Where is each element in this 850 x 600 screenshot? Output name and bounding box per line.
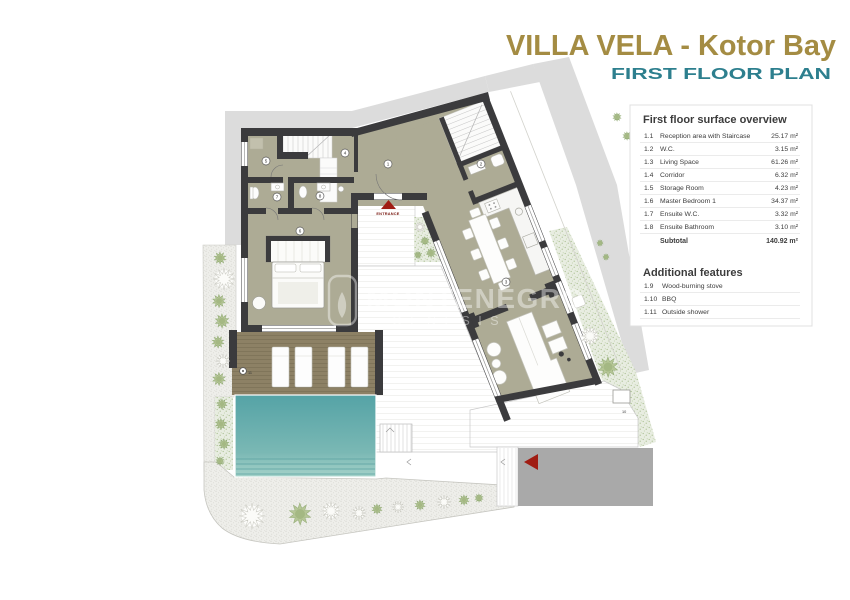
svg-text:FIRST FLOOR PLAN: FIRST FLOOR PLAN — [611, 66, 831, 83]
svg-text:First floor surface overview: First floor surface overview — [643, 114, 787, 126]
svg-text:34.37 m²: 34.37 m² — [771, 198, 799, 205]
svg-text:3.32 m²: 3.32 m² — [775, 211, 799, 218]
svg-text:7: 7 — [276, 195, 279, 200]
svg-text:1: 1 — [387, 162, 390, 167]
svg-text:1.4: 1.4 — [644, 172, 654, 179]
svg-text:Storage Room: Storage Room — [660, 185, 704, 192]
svg-text:1.2: 1.2 — [644, 146, 654, 153]
svg-text:Additional features: Additional features — [643, 267, 743, 279]
svg-text:11: 11 — [248, 371, 252, 375]
svg-text:Ensuite W.C.: Ensuite W.C. — [660, 211, 699, 218]
svg-text:8: 8 — [319, 194, 322, 199]
svg-text:10: 10 — [622, 410, 626, 414]
svg-text:1.11: 1.11 — [644, 309, 657, 316]
svg-text:Wood-burning stove: Wood-burning stove — [662, 283, 723, 290]
svg-text:4: 4 — [344, 151, 347, 156]
svg-text:Outside shower: Outside shower — [662, 309, 710, 316]
svg-text:140.92 m²: 140.92 m² — [766, 238, 799, 245]
svg-text:6: 6 — [299, 229, 302, 234]
svg-text:3.15 m²: 3.15 m² — [775, 146, 799, 153]
svg-text:1.8: 1.8 — [644, 224, 654, 231]
svg-text:1.9: 1.9 — [644, 283, 654, 290]
svg-text:4.23 m²: 4.23 m² — [775, 185, 799, 192]
svg-text:Corridor: Corridor — [660, 172, 685, 179]
svg-text:Reception area with Staircase: Reception area with Staircase — [660, 133, 751, 140]
svg-text:BBQ: BBQ — [662, 296, 676, 303]
svg-text:Living Space: Living Space — [660, 159, 699, 166]
svg-text:1.10: 1.10 — [644, 296, 657, 303]
svg-text:Subtotal: Subtotal — [660, 238, 688, 245]
svg-text:61.26 m²: 61.26 m² — [771, 159, 799, 166]
svg-text:1.7: 1.7 — [644, 211, 654, 218]
svg-text:2: 2 — [480, 162, 483, 167]
svg-text:25.17 m²: 25.17 m² — [771, 133, 799, 140]
svg-text:Ensuite Bathroom: Ensuite Bathroom — [660, 224, 714, 231]
svg-text:1.3: 1.3 — [644, 159, 654, 166]
svg-text:6.32 m²: 6.32 m² — [775, 172, 799, 179]
svg-text:W.C.: W.C. — [660, 146, 675, 153]
svg-text:3.10 m²: 3.10 m² — [775, 224, 799, 231]
svg-text:MONTENEGRO: MONTENEGRO — [366, 283, 585, 314]
svg-text:5: 5 — [265, 159, 268, 164]
svg-text:Master Bedroom 1: Master Bedroom 1 — [660, 198, 716, 205]
svg-text:1.5: 1.5 — [644, 185, 654, 192]
svg-text:VILLA VELA - Kotor Bay: VILLA VELA - Kotor Bay — [506, 30, 836, 62]
svg-text:GENESIS: GENESIS — [392, 314, 507, 328]
svg-text:1.6: 1.6 — [644, 198, 654, 205]
svg-text:1.1: 1.1 — [644, 133, 654, 140]
svg-text:ENTRANCE: ENTRANCE — [376, 211, 399, 216]
